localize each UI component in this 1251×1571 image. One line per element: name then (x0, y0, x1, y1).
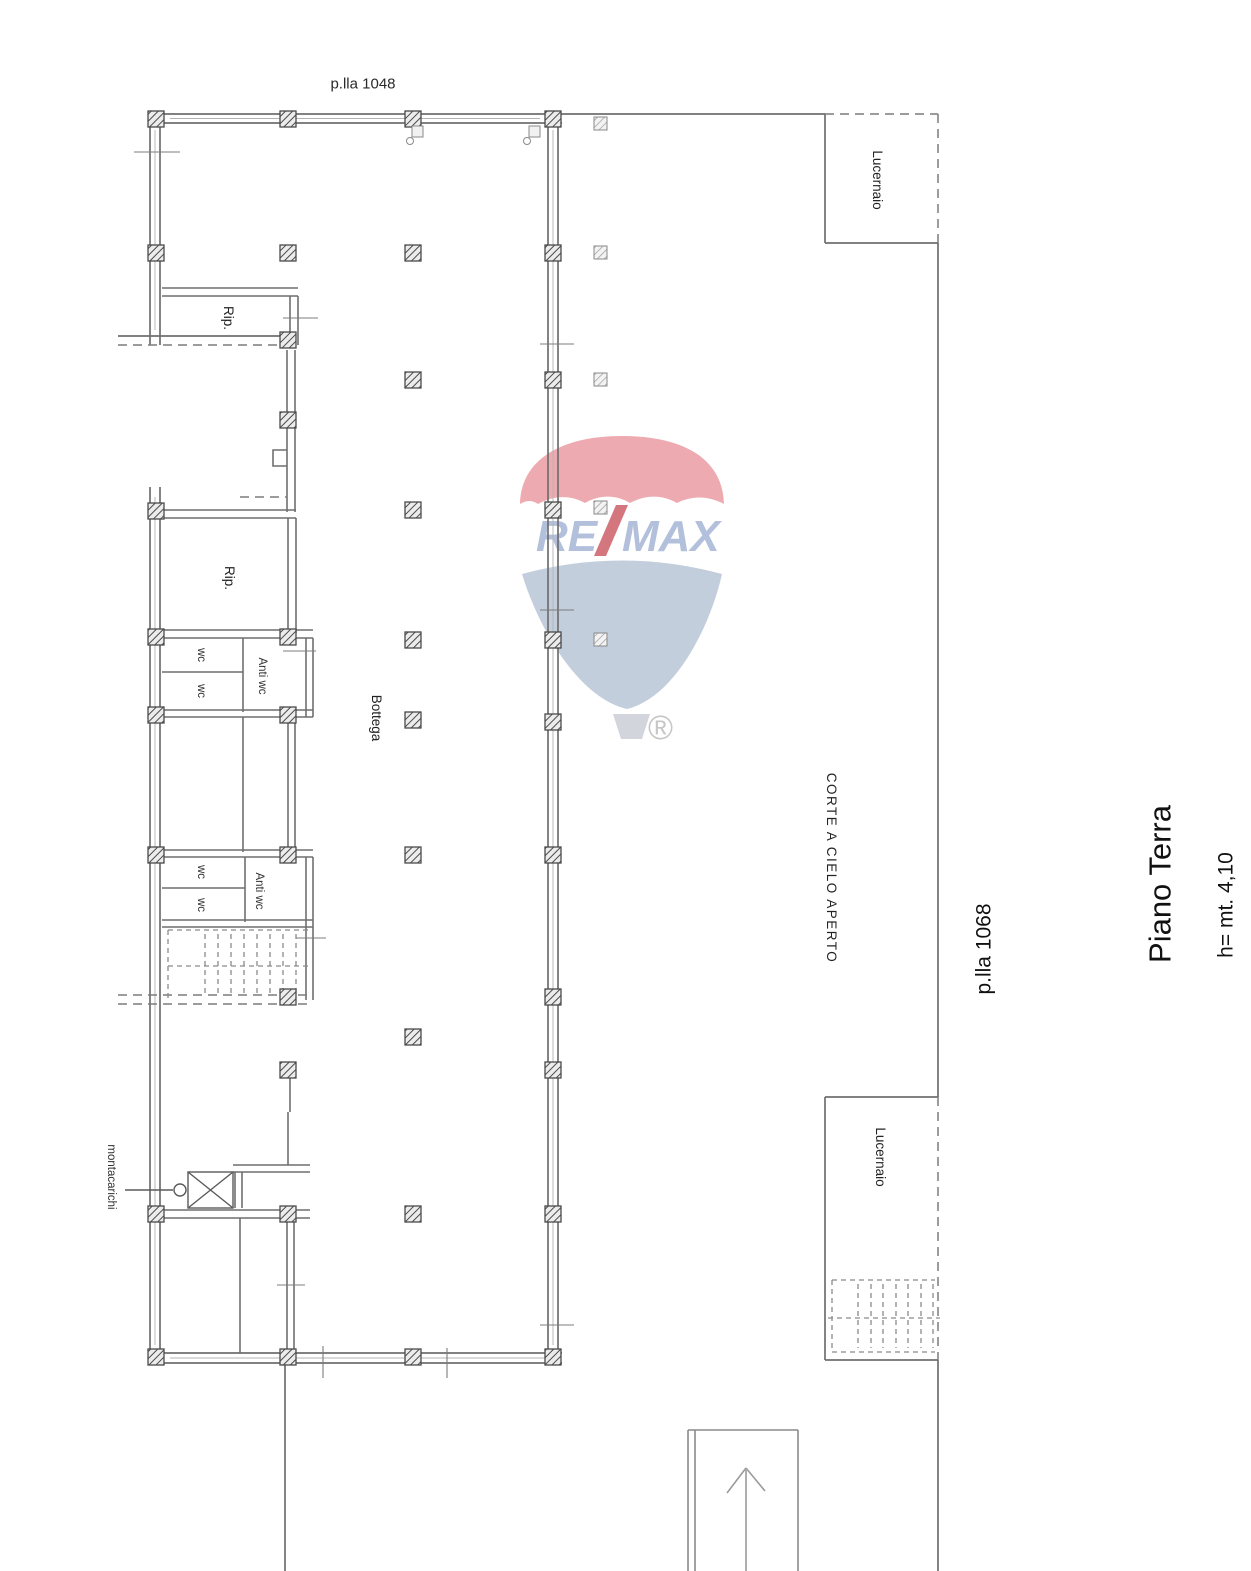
floorplan-canvas: RE MAX ® (0, 0, 1251, 1571)
remax-balloon-watermark: RE MAX ® (520, 436, 724, 747)
entrance-passage (688, 1430, 798, 1571)
room-label-wc-top-1: wc (194, 648, 206, 662)
watermark-brand-left: RE (536, 512, 599, 561)
room-label-shop: Bottega (369, 695, 383, 742)
parcel-label-top: p.lla 1048 (330, 77, 395, 92)
freight-elevator-symbol (125, 1172, 233, 1208)
room-label-freight-elevator: montacarichi (104, 1144, 116, 1209)
entrance-arrow-icon (727, 1468, 765, 1571)
staircase-lower (828, 1280, 940, 1352)
interior-walls (155, 288, 313, 1353)
floor-title: Piano Terra (1145, 805, 1176, 963)
balloon-basket (613, 714, 650, 739)
dashed-boundary-lines (118, 114, 938, 1360)
room-label-anti-wc-low: Anti wc (252, 872, 264, 909)
room-label-storage-top: Rip. (221, 306, 235, 330)
outer-walls (118, 114, 938, 1571)
floor-height-note: h= mt. 4,10 (1216, 852, 1237, 958)
room-label-wc-low-2: wc (194, 898, 206, 912)
room-label-skylight-top: Lucernaio (870, 150, 884, 209)
room-label-wc-low-1: wc (194, 865, 206, 879)
room-label-storage-mid: Rip. (222, 566, 236, 590)
watermark-brand-right: MAX (622, 512, 722, 561)
room-label-skylight-bottom: Lucernaio (873, 1127, 887, 1186)
door-pivot-marks (407, 126, 541, 145)
registered-trademark-icon: ® (648, 709, 673, 747)
room-label-wc-top-2: wc (194, 684, 206, 698)
balloon-dome (520, 436, 724, 504)
parcel-label-courtyard: p.lla 1068 (974, 903, 995, 994)
room-label-courtyard: CORTE A CIELO APERTO (824, 773, 838, 964)
room-label-anti-wc-top: Anti wc (255, 657, 267, 694)
floorplan-drawing: RE MAX ® (0, 0, 1251, 1571)
